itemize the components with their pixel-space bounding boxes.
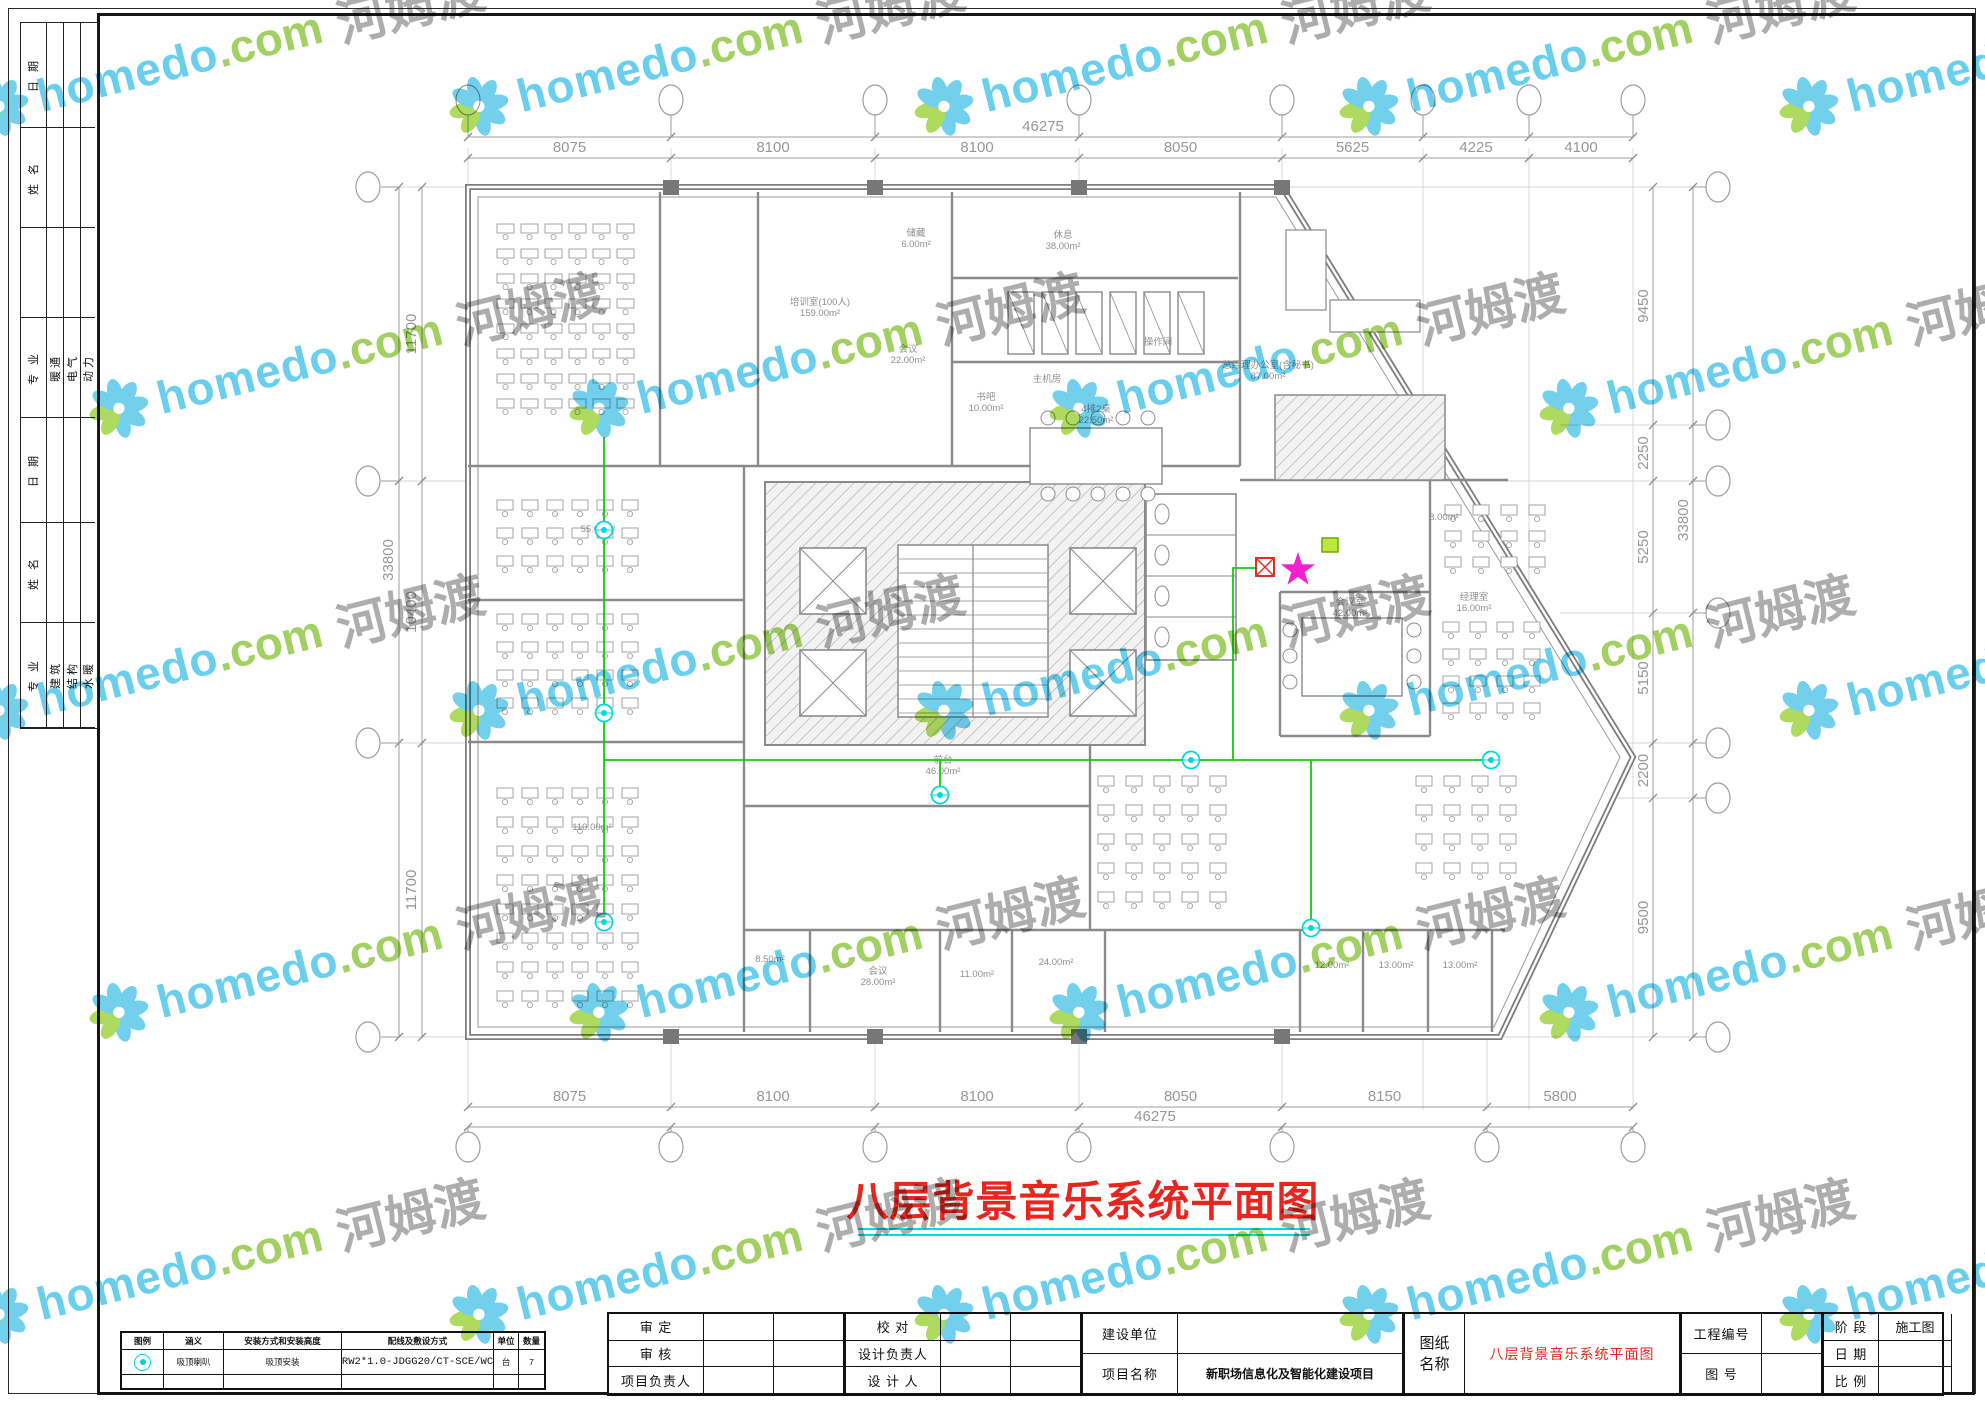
room-label: 操作间 [1144, 336, 1173, 348]
legend-row: 吸顶喇叭吸顶安装RW2*1.0-JDGG20/CT-SCE/WC台7 [122, 1350, 544, 1375]
title-underline [858, 1228, 1310, 1230]
legend-qty: 7 [519, 1350, 544, 1375]
svg-text:8050: 8050 [1164, 139, 1197, 156]
titleblock-label: 建设单位 [1083, 1314, 1178, 1354]
svg-text:46275: 46275 [1022, 118, 1064, 135]
volume-control [1322, 538, 1338, 552]
room-label: 13.00m² [1443, 960, 1478, 971]
titleblock-value [1762, 1314, 1822, 1354]
sheet-name-label: 图纸名称 [1405, 1314, 1465, 1394]
legend-empty-cell [224, 1375, 342, 1388]
titleblock-group: 审 定审 核项目负责人 [609, 1314, 844, 1394]
titleblock-group: 阶 段施工图日 期比 例 [1822, 1314, 1952, 1394]
room-label: 110.00m² [572, 822, 611, 833]
titleblock-label: 日 期 [1824, 1341, 1879, 1368]
room-label: 12.00m² [1315, 960, 1350, 971]
titleblock-label: 工程编号 [1682, 1314, 1762, 1354]
svg-text:8075: 8075 [553, 139, 586, 156]
legend-empty-cell [342, 1375, 494, 1388]
titleblock-value [1011, 1341, 1081, 1368]
svg-text:11700: 11700 [403, 314, 420, 355]
titleblock-value [774, 1367, 844, 1394]
titleblock-label: 审 核 [609, 1341, 704, 1368]
legend-empty-cell [122, 1375, 164, 1388]
legend-empty-cell [519, 1375, 544, 1388]
svg-text:5625: 5625 [1336, 139, 1369, 156]
svg-text:5250: 5250 [1635, 530, 1652, 563]
room-label: 经理室16.00m² [1457, 591, 1492, 614]
titleblock-label: 图 号 [1682, 1354, 1762, 1394]
room-label: 主机房 [1033, 373, 1062, 385]
title-underline-2 [858, 1234, 1310, 1236]
svg-text:8050: 8050 [1164, 1088, 1197, 1105]
titleblock-value [774, 1341, 844, 1368]
titleblock-label: 项目负责人 [609, 1367, 704, 1394]
ceiling-speaker-icon [596, 914, 613, 931]
ceiling-speaker-icon [596, 522, 613, 539]
drawing-title: 八层背景音乐系统平面图 [828, 1168, 1338, 1229]
ceiling-speaker-icon [1303, 920, 1320, 937]
titleblock-value [774, 1314, 844, 1341]
titleblock-value [1879, 1341, 1952, 1368]
project-name [1178, 1314, 1403, 1354]
speaker-symbol [134, 1354, 151, 1371]
room-label: 8.50m² [755, 954, 785, 965]
legend-empty-cell [494, 1375, 519, 1388]
room-label: 13.00m² [1379, 960, 1414, 971]
titleblock-group: 工程编号图 号 [1680, 1314, 1822, 1394]
titleblock-value: 施工图 [1879, 1314, 1952, 1341]
room-label: 11.00m² [960, 969, 994, 980]
svg-text:9500: 9500 [1635, 901, 1652, 934]
ceiling-speaker-icon [1183, 752, 1200, 769]
svg-text:5150: 5150 [1635, 661, 1652, 694]
titleblock-value [1762, 1354, 1822, 1394]
svg-text:4100: 4100 [1564, 139, 1597, 156]
titleblock-label: 设计负责人 [846, 1341, 941, 1368]
legend-header-cell: 数量 [519, 1333, 544, 1350]
legend-wiring-spec: RW2*1.0-JDGG20/CT-SCE/WC [342, 1350, 494, 1375]
legend-table: 图例涵义安装方式和安装高度配线及敷设方式单位数量吸顶喇叭吸顶安装RW2*1.0-… [120, 1331, 546, 1390]
titleblock-label: 比 例 [1824, 1367, 1879, 1394]
titleblock-group: 建设单位项目名称新职场信息化及智能化建设项目 [1081, 1314, 1403, 1394]
svg-text:8100: 8100 [960, 1088, 993, 1105]
titleblock-label: 项目名称 [1083, 1354, 1178, 1394]
legend-header-cell: 安装方式和安装高度 [224, 1333, 342, 1350]
svg-text:9450: 9450 [1635, 289, 1652, 322]
title-block: 审 定审 核项目负责人校 对设计负责人设 计 人建设单位项目名称新职场信息化及智… [607, 1312, 1944, 1396]
legend-header-cell: 配线及敷设方式 [342, 1333, 494, 1350]
titleblock-value [1011, 1314, 1081, 1341]
legend-meaning: 吸顶喇叭 [164, 1350, 224, 1375]
titleblock-value [1011, 1367, 1081, 1394]
svg-text:8100: 8100 [960, 139, 993, 156]
legend-install: 吸顶安装 [224, 1350, 342, 1375]
svg-text:8100: 8100 [756, 139, 789, 156]
svg-text:2200: 2200 [1635, 754, 1652, 787]
ceiling-speaker-icon [122, 1350, 164, 1375]
legend-header-cell: 单位 [494, 1333, 519, 1350]
legend-unit: 台 [494, 1350, 519, 1375]
ceiling-speaker-icon [1483, 752, 1500, 769]
svg-text:33800: 33800 [380, 539, 397, 581]
room-label: 24.00m² [1039, 957, 1074, 968]
svg-text:2250: 2250 [1635, 436, 1652, 469]
titleblock-value [941, 1341, 1011, 1368]
room-label: 会议室42.00m² [1333, 596, 1368, 619]
sheet-name-value: 八层背景音乐系统平面图 [1465, 1314, 1680, 1394]
svg-text:5800: 5800 [1543, 1088, 1576, 1105]
project-name: 新职场信息化及智能化建设项目 [1178, 1354, 1403, 1394]
legend-empty-cell [164, 1375, 224, 1388]
svg-text:33800: 33800 [1675, 499, 1692, 541]
svg-text:8075: 8075 [553, 1088, 586, 1105]
titleblock-value [941, 1367, 1011, 1394]
svg-text:10400: 10400 [403, 591, 420, 633]
titleblock-label: 设 计 人 [846, 1367, 941, 1394]
svg-text:8100: 8100 [756, 1088, 789, 1105]
ceiling-speaker-icon [596, 705, 613, 722]
svg-text:46275: 46275 [1134, 1108, 1176, 1125]
room-label: 8.00m² [1429, 512, 1459, 523]
titleblock-group: 校 对设计负责人设 计 人 [844, 1314, 1081, 1394]
titleblock-group: 图纸名称八层背景音乐系统平面图 [1403, 1314, 1680, 1394]
ceiling-speaker-icon [932, 787, 949, 804]
titleblock-label: 阶 段 [1824, 1314, 1879, 1341]
titleblock-value [704, 1314, 774, 1341]
titleblock-value [941, 1314, 1011, 1341]
titleblock-value [704, 1341, 774, 1368]
legend-header-cell: 涵义 [164, 1333, 224, 1350]
svg-text:8150: 8150 [1368, 1088, 1401, 1105]
room-label: 4排2桌22.50m² [1079, 403, 1114, 426]
titleblock-value [704, 1367, 774, 1394]
titleblock-label: 校 对 [846, 1314, 941, 1341]
legend-header-cell: 图例 [122, 1333, 164, 1350]
titleblock-label: 审 定 [609, 1314, 704, 1341]
titleblock-value [1879, 1367, 1952, 1394]
svg-text:4225: 4225 [1459, 139, 1492, 156]
svg-text:11700: 11700 [403, 870, 420, 911]
